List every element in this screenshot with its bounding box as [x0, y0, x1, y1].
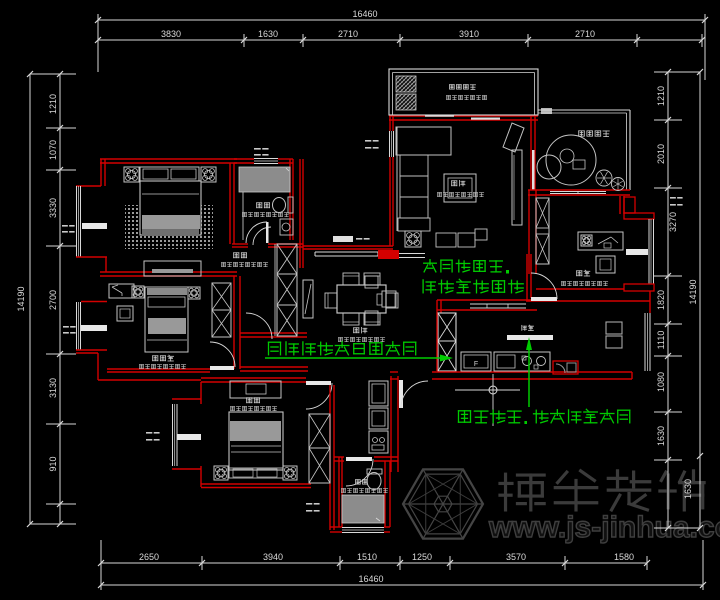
svg-text:3330: 3330 — [48, 198, 58, 218]
svg-text:1630: 1630 — [656, 426, 666, 446]
svg-text:2700: 2700 — [48, 290, 58, 310]
svg-text:3270: 3270 — [668, 212, 678, 232]
svg-text:2650: 2650 — [139, 552, 159, 562]
svg-text:3940: 3940 — [263, 552, 283, 562]
svg-text:1510: 1510 — [357, 552, 377, 562]
svg-text:14190: 14190 — [16, 286, 26, 311]
svg-text:16460: 16460 — [358, 574, 383, 584]
svg-text:1070: 1070 — [48, 140, 58, 160]
svg-text:3570: 3570 — [506, 552, 526, 562]
svg-text:1580: 1580 — [614, 552, 634, 562]
svg-text:910: 910 — [48, 456, 58, 471]
svg-text:1630: 1630 — [258, 29, 278, 39]
svg-text:1080: 1080 — [656, 372, 666, 392]
svg-text:3910: 3910 — [459, 29, 479, 39]
svg-text:1210: 1210 — [656, 86, 666, 106]
svg-text:2710: 2710 — [575, 29, 595, 39]
svg-text:2710: 2710 — [338, 29, 358, 39]
svg-text:1250: 1250 — [412, 552, 432, 562]
svg-text:14190: 14190 — [688, 279, 698, 304]
svg-text:1210: 1210 — [48, 94, 58, 114]
svg-text:2010: 2010 — [656, 144, 666, 164]
svg-text:F: F — [474, 361, 478, 368]
svg-text:1630: 1630 — [683, 479, 693, 499]
svg-text:1110: 1110 — [656, 331, 666, 350]
svg-text:3830: 3830 — [161, 29, 181, 39]
svg-text:1820: 1820 — [656, 290, 666, 310]
svg-text:3130: 3130 — [48, 378, 58, 398]
svg-text:16460: 16460 — [352, 9, 377, 19]
